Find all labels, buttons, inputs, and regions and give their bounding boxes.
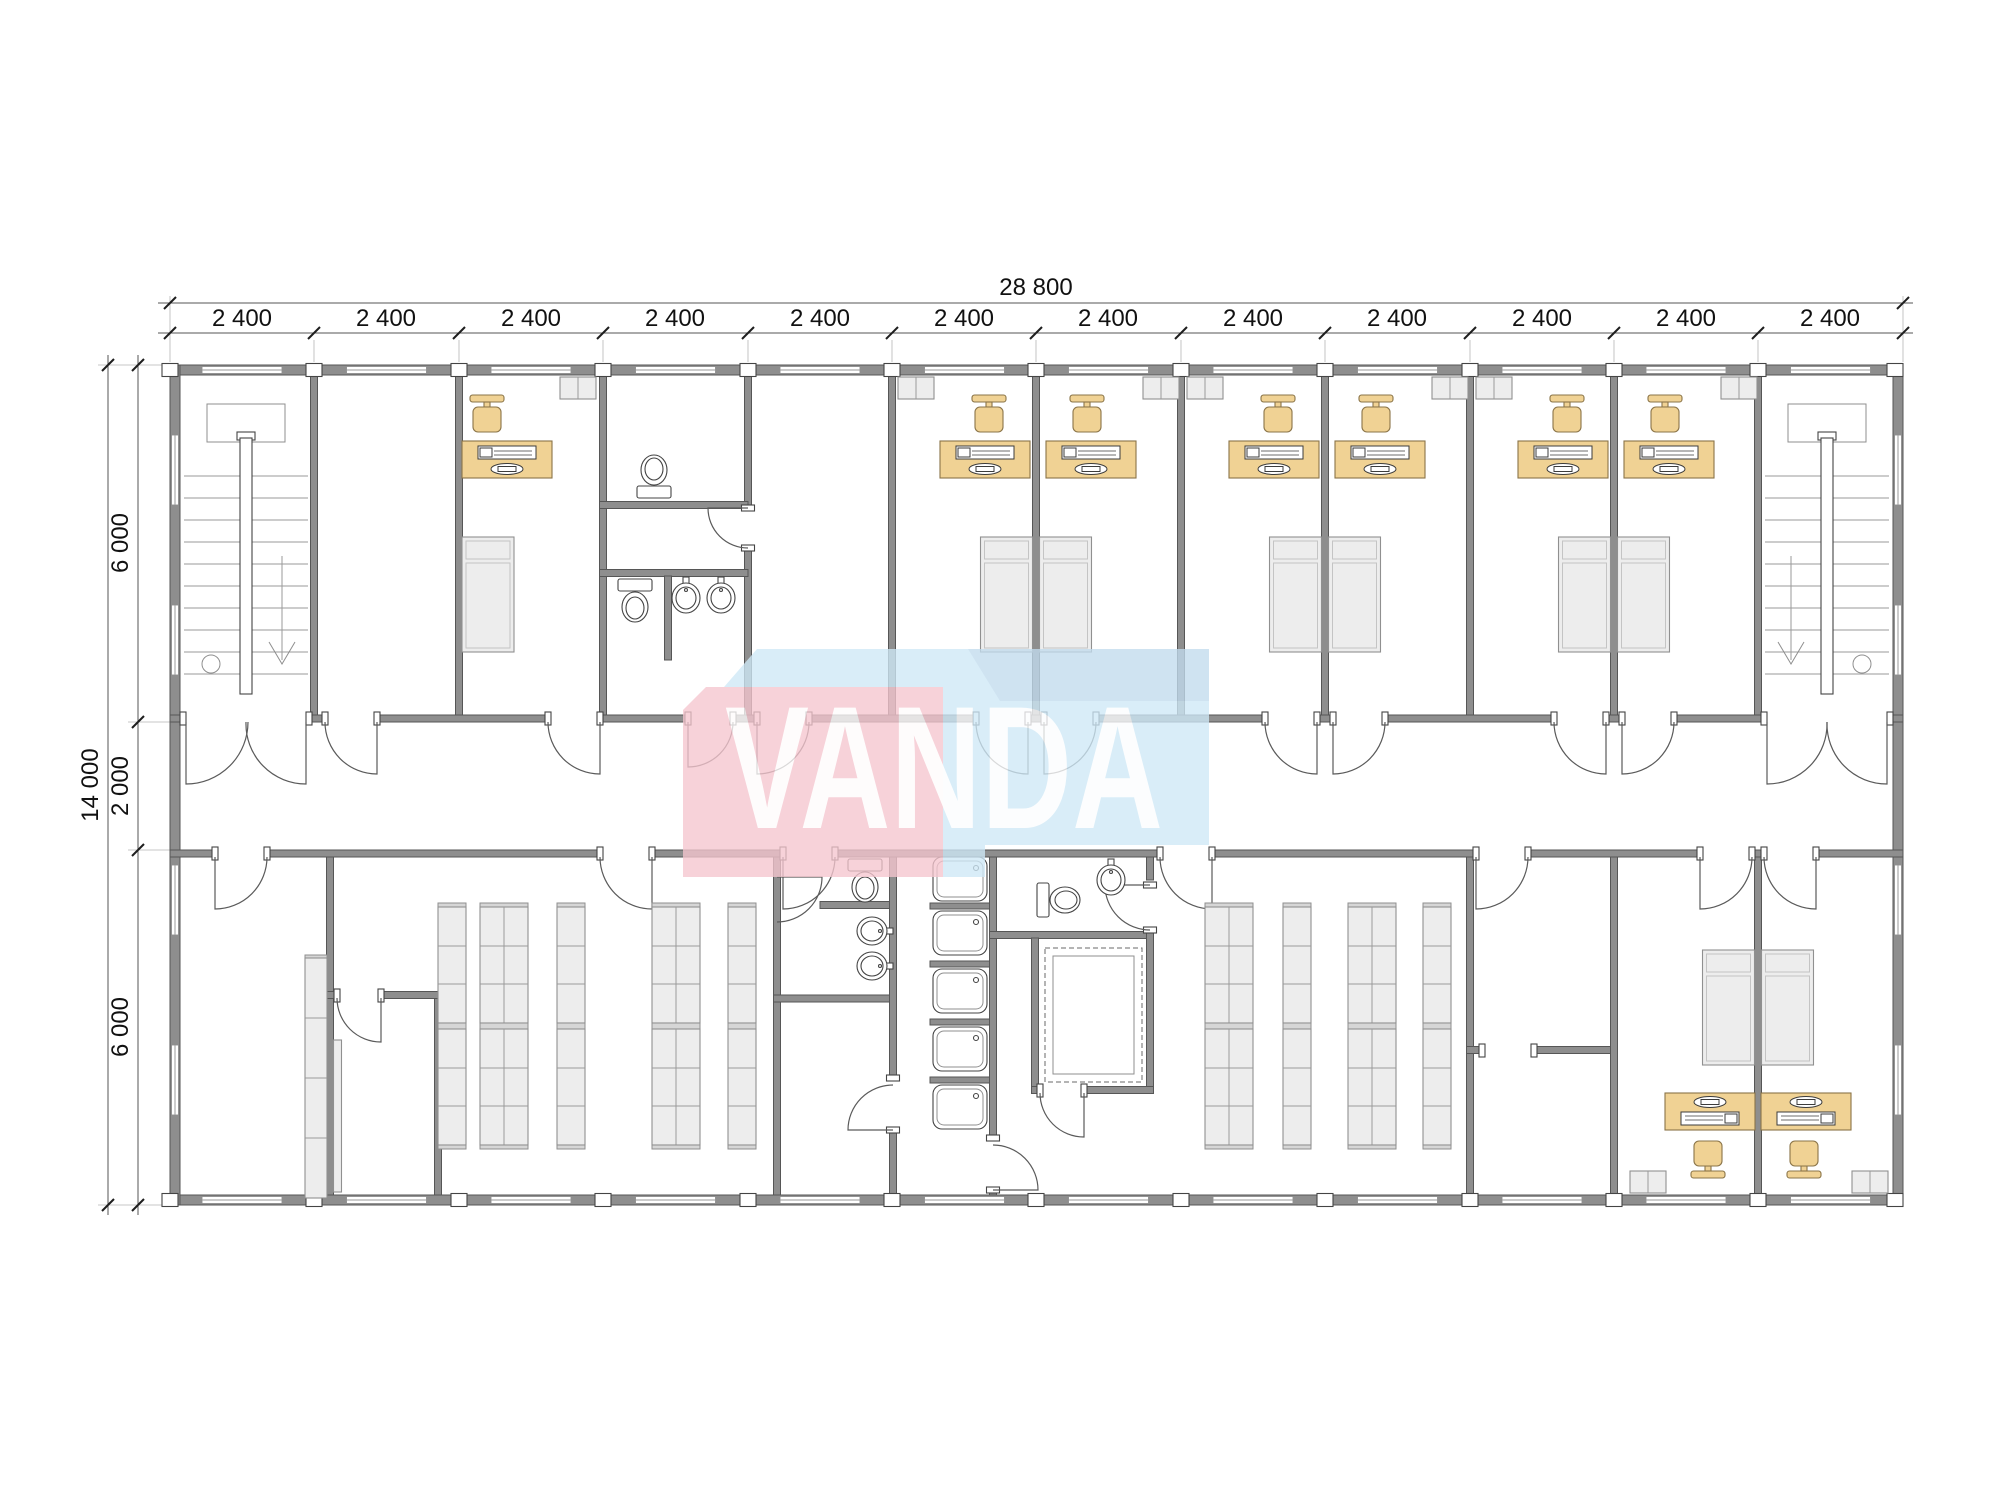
- dim-bay: 2 400: [501, 305, 561, 332]
- window-icon: [491, 367, 571, 374]
- window-icon: [172, 605, 179, 675]
- door-arc: [1476, 857, 1528, 909]
- desk-with-computer: [1046, 441, 1136, 478]
- window-icon: [172, 865, 179, 935]
- window-icon: [1895, 605, 1902, 675]
- window-icon: [172, 435, 179, 505]
- wardrobe: [1432, 377, 1468, 399]
- toilet: [1037, 883, 1080, 917]
- door-arc: [246, 722, 306, 784]
- dim-bay: 2 400: [1223, 305, 1283, 332]
- staircase-west: [184, 404, 308, 694]
- wardrobe: [1143, 377, 1179, 399]
- window-icon: [172, 1045, 179, 1115]
- dim-depth-corridor: 2 000: [107, 756, 134, 816]
- office-chair: [1359, 395, 1393, 432]
- window-icon: [1502, 1197, 1582, 1204]
- window-icon: [1646, 1197, 1726, 1204]
- shelving-rack: [557, 903, 585, 1149]
- window-icon: [1069, 367, 1149, 374]
- floor-plan-svg: 28 800 2 400 2 400 2 400 2 400 2 400 2 4…: [0, 0, 2000, 1500]
- bed: [462, 537, 514, 652]
- door-arc: [1622, 722, 1674, 774]
- staircase-east: [1765, 404, 1889, 694]
- window-icon: [1358, 367, 1438, 374]
- dim-bay: 2 400: [1367, 305, 1427, 332]
- dim-total-width: 28 800: [999, 274, 1072, 301]
- shelving-rack: [1348, 903, 1396, 1149]
- window-icon: [1213, 1197, 1293, 1204]
- dim-total-depth: 14 000: [77, 748, 104, 821]
- bed: [1618, 537, 1670, 652]
- window-icon: [347, 1197, 427, 1204]
- window-icon: [202, 367, 282, 374]
- north-sanitary: [618, 455, 735, 622]
- door-arc: [1265, 722, 1317, 774]
- office-chair: [1691, 1141, 1725, 1178]
- dimension-top-bays: 2 400 2 400 2 400 2 400 2 400 2 400 2 40…: [158, 305, 1913, 339]
- shelving-rack: [652, 903, 700, 1149]
- door-arc: [186, 722, 248, 784]
- desk-with-computer: [1229, 441, 1319, 478]
- wardrobe: [898, 377, 934, 399]
- floor-plan-page: 28 800 2 400 2 400 2 400 2 400 2 400 2 4…: [0, 0, 2000, 1500]
- shower-cabin: [933, 1027, 987, 1071]
- wardrobe: [1187, 377, 1223, 399]
- bed: [981, 537, 1033, 652]
- dim-bay: 2 400: [1656, 305, 1716, 332]
- office-chair: [1550, 395, 1584, 432]
- shelving-rack: [728, 903, 756, 1149]
- desk-with-computer: [1335, 441, 1425, 478]
- dim-depth-north: 6 000: [107, 513, 134, 573]
- wardrobe: [560, 377, 596, 399]
- shelving-rack: [1205, 903, 1253, 1149]
- toilet: [618, 579, 652, 622]
- office-chair: [972, 395, 1006, 432]
- dim-bay: 2 400: [356, 305, 416, 332]
- desk-with-computer: [940, 441, 1030, 478]
- desk-with-computer: [1665, 1093, 1755, 1130]
- dimension-left-segments: 6 000 2 000 6 000: [107, 355, 144, 1215]
- bed: [1270, 537, 1322, 652]
- window-icon: [1069, 1197, 1149, 1204]
- watermark: VANDA: [683, 649, 1209, 877]
- door-arc: [708, 508, 748, 548]
- shelving-rack: [1423, 903, 1451, 1149]
- shower-cabin: [933, 911, 987, 955]
- dim-bay: 2 400: [790, 305, 850, 332]
- door-arc: [1040, 1093, 1084, 1137]
- storage-east: [1205, 903, 1451, 1149]
- sink: [857, 917, 893, 945]
- shelving-rack: [1283, 903, 1311, 1149]
- wall-bench: [334, 1040, 342, 1192]
- dim-bay: 2 400: [934, 305, 994, 332]
- door-arc: [1333, 722, 1385, 774]
- office-chair: [1261, 395, 1295, 432]
- window-icon: [1791, 367, 1871, 374]
- office-chair: [1648, 395, 1682, 432]
- office-chair: [470, 395, 504, 432]
- desk-with-computer: [462, 441, 552, 478]
- door-arc: [1160, 857, 1212, 909]
- window-icon: [780, 367, 860, 374]
- door-arc: [325, 722, 377, 774]
- desk-with-computer: [1518, 441, 1608, 478]
- bed: [1703, 950, 1755, 1065]
- bed: [1040, 537, 1092, 652]
- door-arc: [993, 1145, 1038, 1190]
- desk-with-computer: [1624, 441, 1714, 478]
- shelving-rack: [480, 903, 528, 1149]
- office-chair: [1070, 395, 1104, 432]
- wardrobe: [1630, 1171, 1666, 1193]
- dim-depth-south: 6 000: [107, 997, 134, 1057]
- window-icon: [636, 1197, 716, 1204]
- door-arc: [1827, 722, 1887, 784]
- door-arc: [1764, 857, 1816, 909]
- window-icon: [780, 1197, 860, 1204]
- bed: [1559, 537, 1611, 652]
- north-offices-furniture: [462, 377, 1757, 652]
- dim-bay: 2 400: [212, 305, 272, 332]
- shelving-rack: [438, 903, 466, 1149]
- wardrobe: [1852, 1171, 1888, 1193]
- door-arc: [215, 857, 267, 909]
- window-icon: [1213, 367, 1293, 374]
- window-icon: [202, 1197, 282, 1204]
- dim-bay: 2 400: [1800, 305, 1860, 332]
- door-arc: [548, 722, 600, 774]
- sink: [857, 952, 893, 980]
- window-icon: [1895, 1045, 1902, 1115]
- bed: [1762, 950, 1814, 1065]
- door-arc: [1700, 857, 1752, 909]
- door-arc: [337, 998, 381, 1042]
- window-icon: [1895, 865, 1902, 935]
- window-icon: [347, 367, 427, 374]
- door-arc: [1767, 722, 1827, 784]
- window-icon: [1502, 367, 1582, 374]
- window-icon: [925, 367, 1005, 374]
- window-icon: [1791, 1197, 1871, 1204]
- bed: [1329, 537, 1381, 652]
- wardrobe: [1721, 377, 1757, 399]
- window-icon: [636, 367, 716, 374]
- window-icon: [491, 1197, 571, 1204]
- dim-bay: 2 400: [1078, 305, 1138, 332]
- toilet: [637, 455, 671, 498]
- door-arc: [600, 857, 652, 909]
- window-icon: [1358, 1197, 1438, 1204]
- dimension-top-total: 28 800: [158, 274, 1913, 309]
- window-icon: [1646, 367, 1726, 374]
- storage-west: [305, 903, 756, 1198]
- window-icon: [1895, 435, 1902, 505]
- office-chair: [1787, 1141, 1821, 1178]
- sink: [707, 577, 735, 613]
- dim-bay: 2 400: [645, 305, 705, 332]
- desk-with-computer: [1761, 1093, 1851, 1130]
- shower-cabin: [933, 969, 987, 1013]
- window-icon: [925, 1197, 1005, 1204]
- wardrobe: [1476, 377, 1512, 399]
- sauna-benches: [1045, 948, 1142, 1082]
- dim-bay: 2 400: [1512, 305, 1572, 332]
- sink: [672, 577, 700, 613]
- shower-cabin: [933, 1085, 987, 1129]
- watermark-text: VANDA: [725, 671, 1163, 866]
- door-arc: [1554, 722, 1606, 774]
- door-arc: [848, 1085, 893, 1130]
- door-arc: [777, 877, 822, 922]
